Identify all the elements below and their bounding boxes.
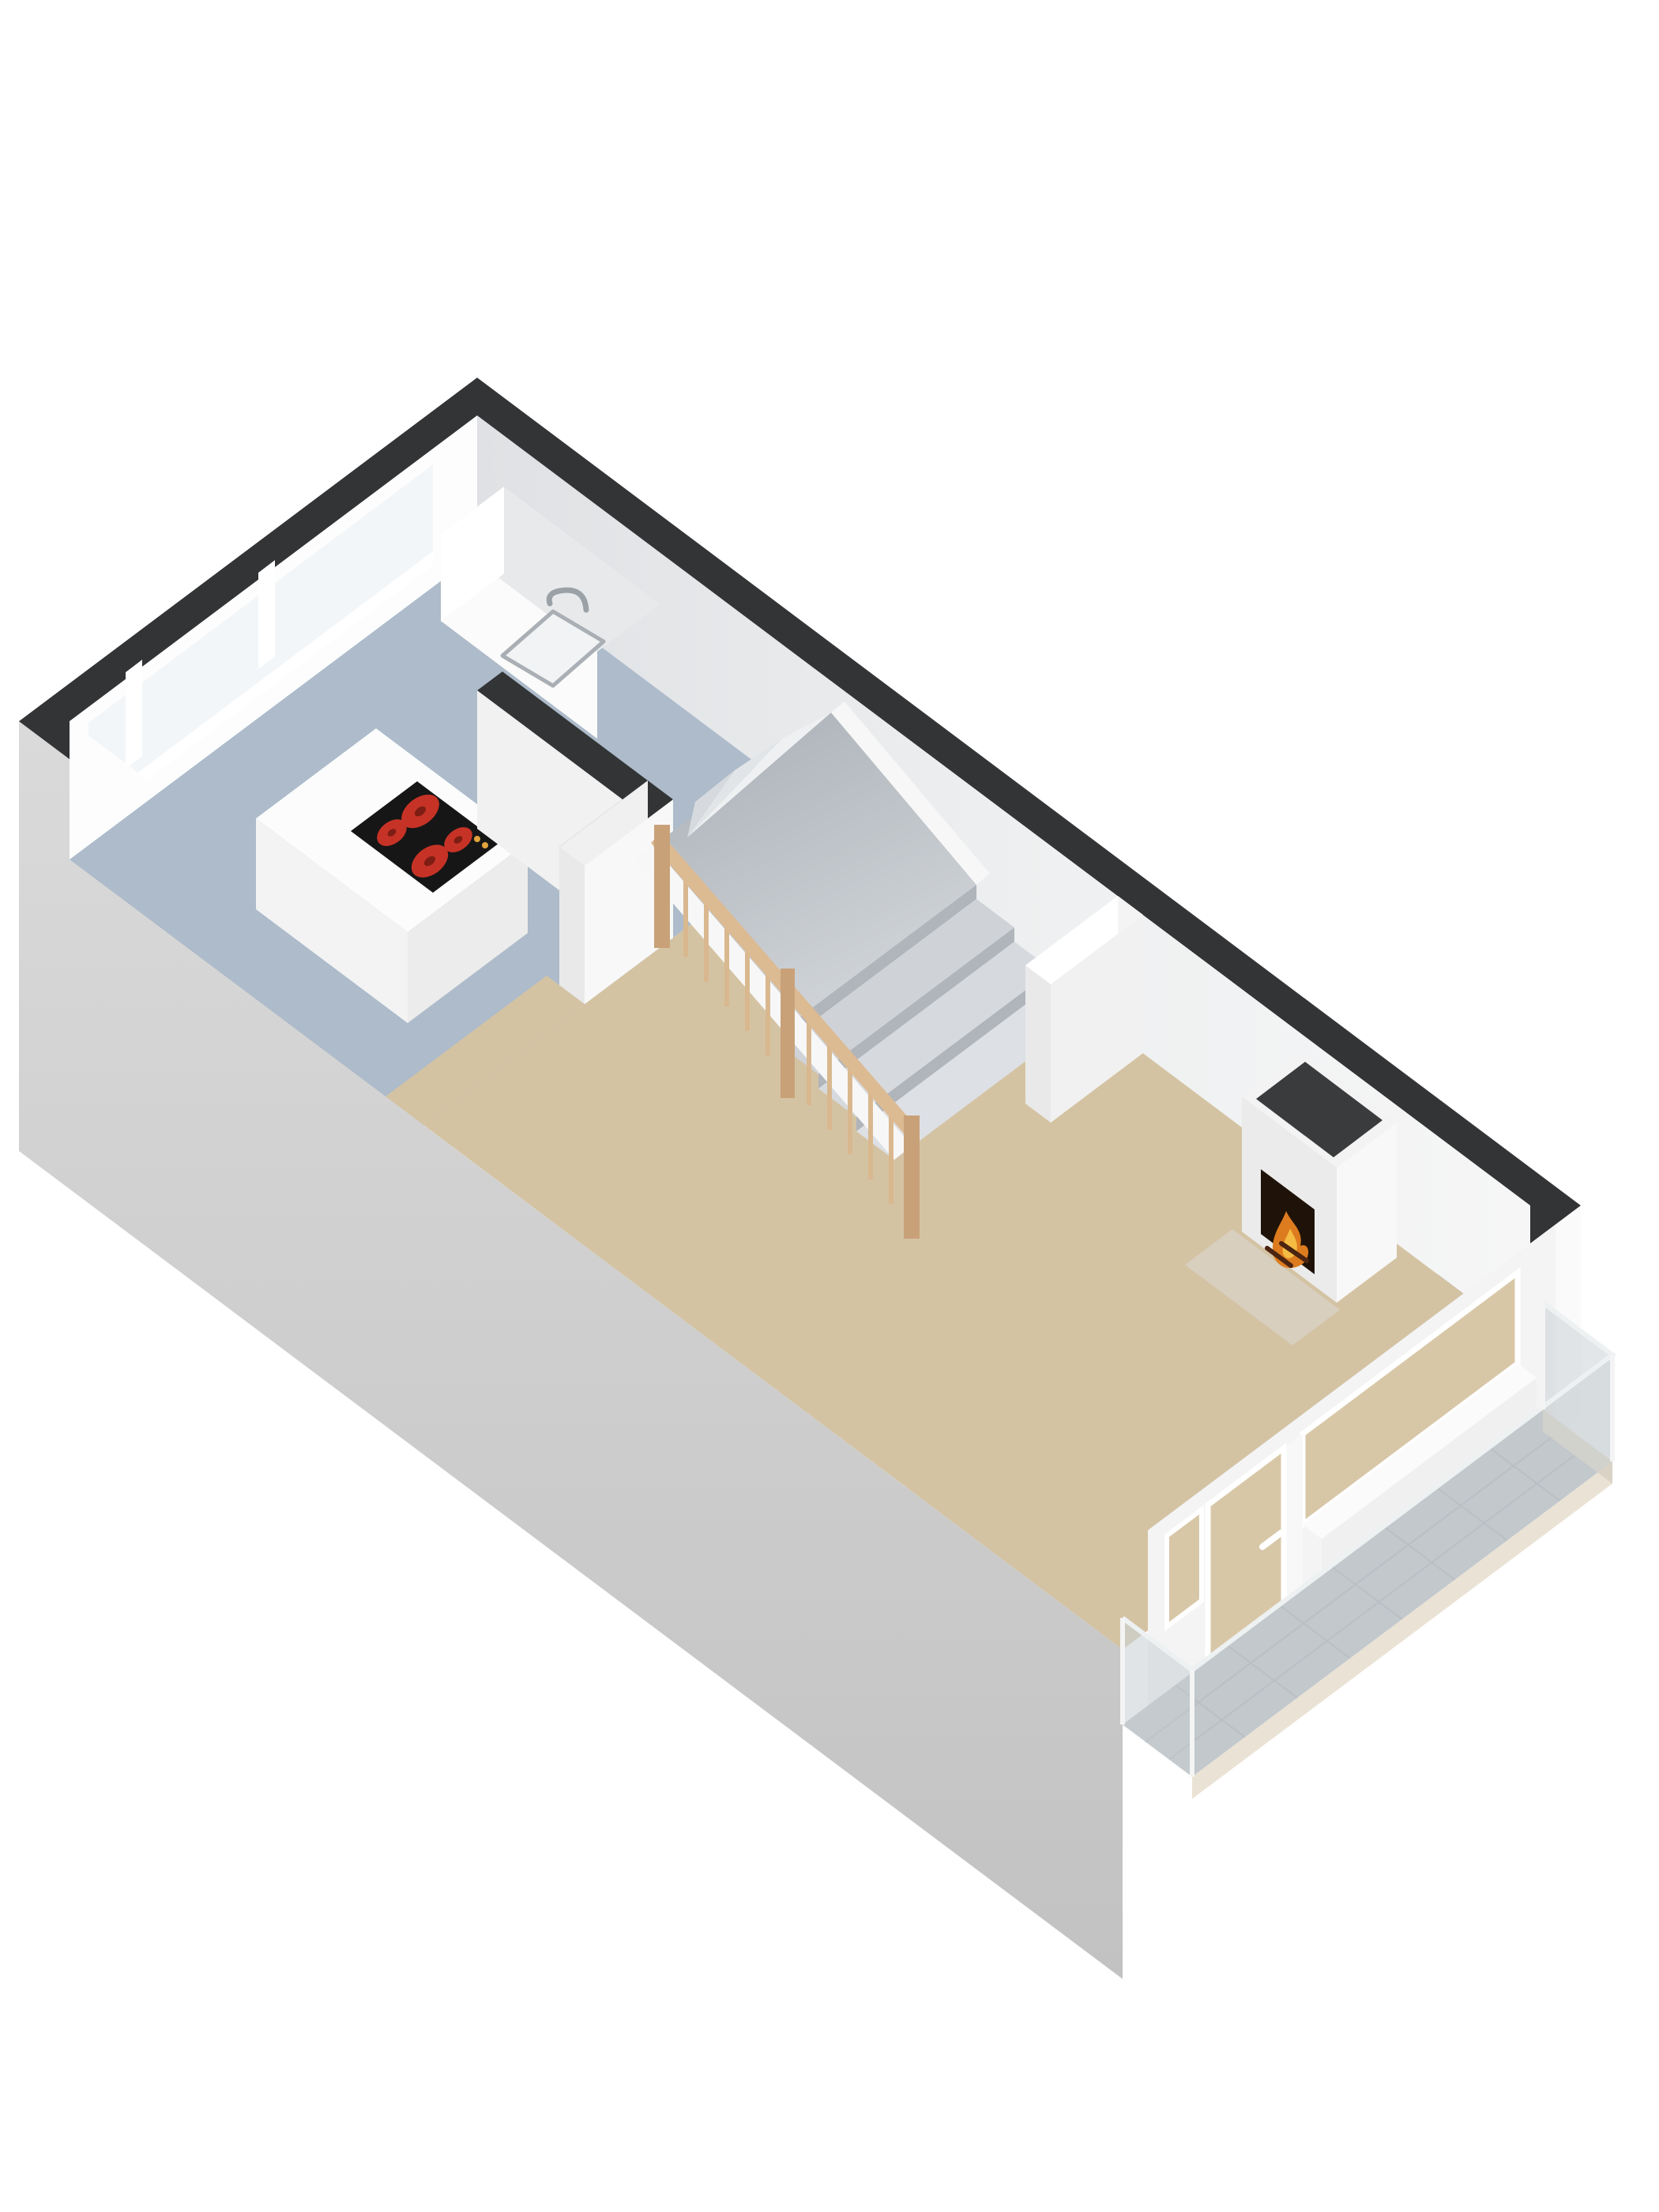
window-mullion-1 <box>258 560 275 669</box>
balustrade-end-post <box>904 1115 920 1239</box>
cooktop-control-dot <box>474 836 480 842</box>
floorplan-svg <box>0 0 1659 2212</box>
window-mullion-2 <box>126 660 142 769</box>
balustrade-mid-post <box>781 969 795 1098</box>
partition-end-face <box>559 847 585 1004</box>
cooktop-control-dot <box>482 842 488 848</box>
stub-wall-end-face <box>1025 965 1051 1123</box>
floorplan-canvas <box>0 0 1659 2212</box>
balustrade-newel-post <box>654 825 670 948</box>
